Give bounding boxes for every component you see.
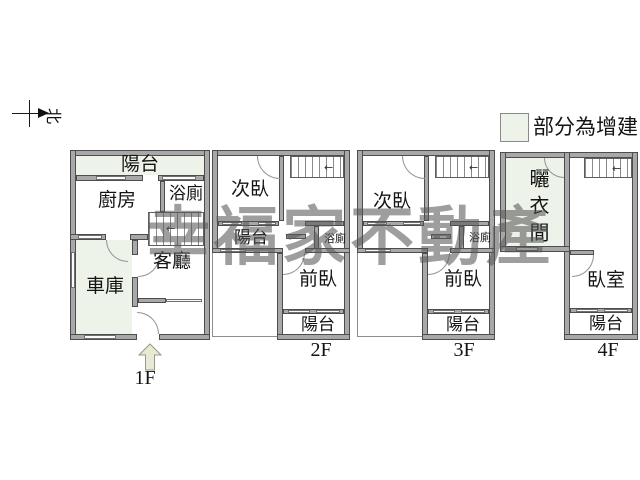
room-label-1f-bath: 浴廁: [165, 185, 207, 203]
floor-label-2f: 2F: [306, 340, 336, 361]
window: [433, 310, 455, 313]
open-area-outline: [212, 336, 277, 337]
floor-label-4f: 4F: [593, 340, 623, 361]
window: [288, 310, 310, 313]
window: [96, 176, 126, 180]
floor-plan-sheet: 北 部分為增建 ← 陽台 廚房 浴廁 客廳 車庫 1F: [0, 0, 640, 480]
room-label-1f-balcony: 陽台: [108, 155, 172, 175]
open-area-outline: [357, 336, 422, 337]
window: [461, 310, 485, 313]
door-arc: [137, 312, 159, 334]
room-label-1f-kitchen: 廚房: [93, 191, 141, 211]
window: [604, 309, 628, 312]
wall: [159, 334, 210, 340]
room-label-2f-balcony: 陽台: [295, 316, 341, 334]
window: [84, 335, 116, 339]
floor-label-3f: 3F: [449, 340, 479, 361]
window: [78, 235, 102, 239]
room-label-4f-balcony: 陽台: [583, 315, 629, 333]
door-arc: [257, 156, 280, 179]
window: [162, 176, 196, 180]
wall: [632, 152, 638, 340]
window: [316, 310, 340, 313]
north-label: 北: [43, 108, 67, 124]
window: [166, 299, 202, 302]
legend-label: 部分為增建: [533, 116, 638, 138]
room-label-3f-balcony: 陽台: [440, 316, 486, 334]
stairs: [584, 158, 632, 178]
wall: [138, 298, 166, 303]
wall: [132, 240, 138, 255]
north-arrow-cross-horizontal: [12, 113, 38, 114]
stairs: [290, 156, 344, 178]
room-label-1f-garage: 車庫: [81, 277, 129, 297]
stairs-direction-arrow: ←: [324, 162, 333, 173]
legend-addition-swatch: [500, 113, 529, 142]
floor-label-1f: 1F: [130, 368, 160, 389]
watermark: 幸福家不動產: [146, 206, 554, 270]
window: [576, 309, 598, 312]
stairs: [435, 156, 489, 178]
door-arc: [402, 156, 425, 179]
stairs-direction-arrow: ←: [469, 162, 478, 173]
window: [71, 252, 75, 288]
room-label-4f-bedroom: 臥室: [581, 271, 631, 291]
room-label-2f-bedroom2: 次臥: [225, 180, 275, 200]
stairs-direction-arrow: ←: [612, 163, 621, 174]
